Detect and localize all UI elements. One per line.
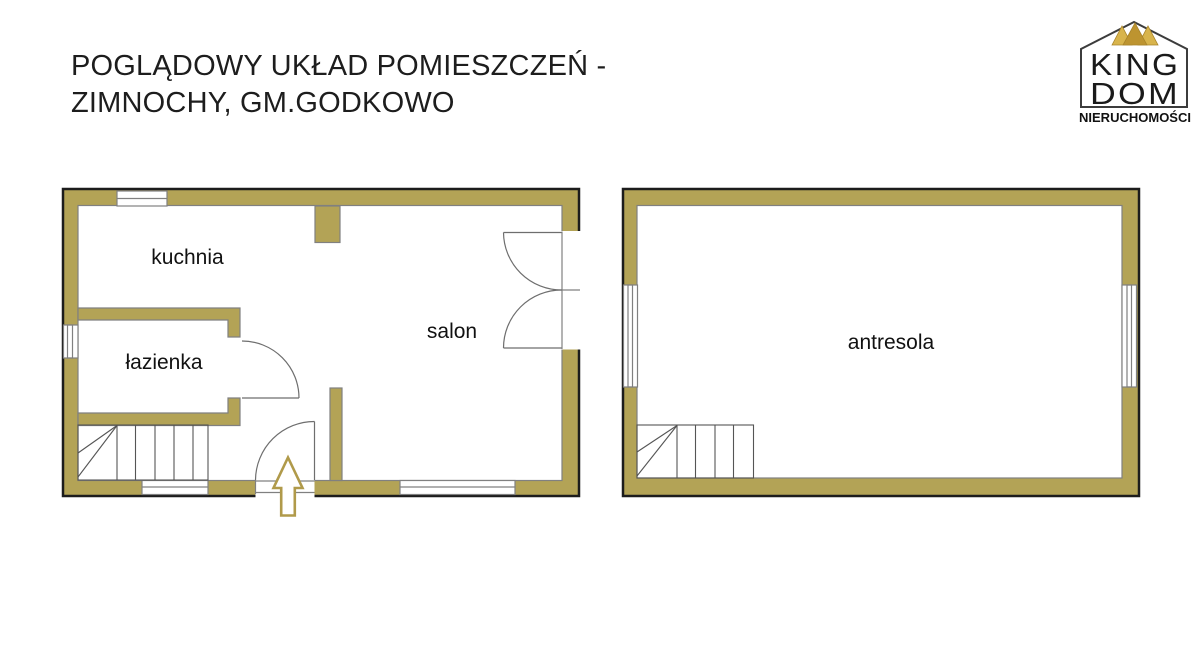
window-right: [1122, 285, 1137, 387]
window-left: [624, 285, 638, 387]
logo-crown-icon: [1112, 23, 1158, 45]
floor-plan-drawing: [0, 0, 1200, 657]
room-label-antresola: antresola: [831, 331, 951, 355]
partition-stub-bottom: [330, 388, 342, 481]
floor-plan-page: POGLĄDOWY UKŁAD POMIESZCZEŃ - ZIMNOCHY, …: [0, 0, 1200, 657]
room-label-kuchnia: kuchnia: [130, 246, 245, 270]
room-label-salon: salon: [402, 320, 502, 344]
window-left: [64, 325, 79, 358]
room-label-lazienka: łazienka: [106, 351, 222, 375]
partition-stub-top: [315, 206, 340, 243]
logo-subtitle-text: NIERUCHOMOŚCI: [1079, 110, 1191, 125]
logo-dom-text: DOM: [1090, 76, 1180, 111]
kingdom-logo: KING DOM NIERUCHOMOŚCI: [1076, 18, 1196, 132]
